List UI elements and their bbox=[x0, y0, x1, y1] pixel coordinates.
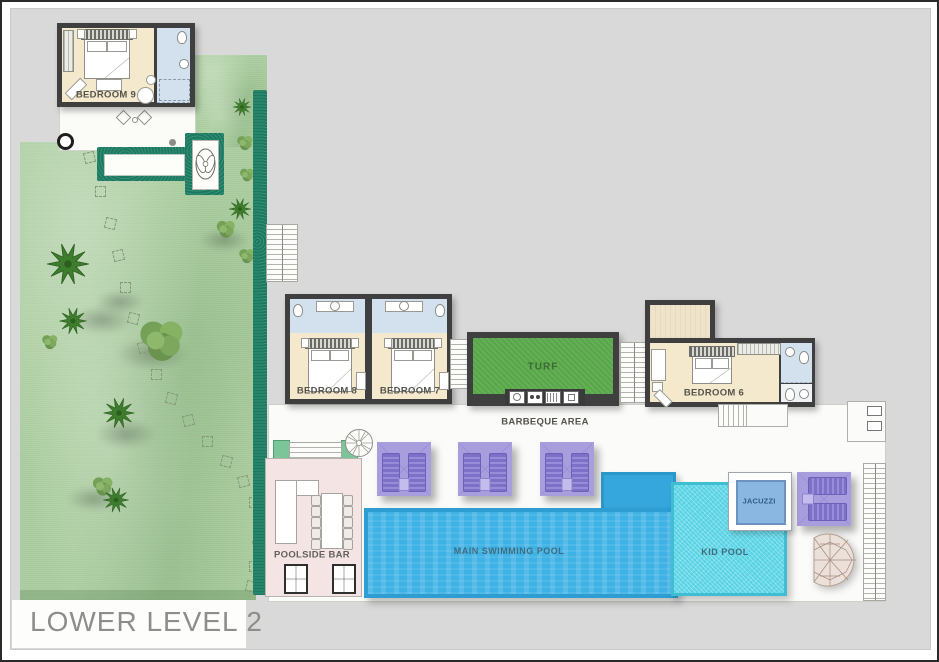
wardrobe bbox=[737, 343, 781, 355]
lounger-table bbox=[480, 478, 491, 491]
bar-table bbox=[321, 493, 343, 549]
lounger-set bbox=[540, 442, 594, 496]
bench bbox=[439, 372, 449, 390]
stairs-garden bbox=[266, 224, 298, 282]
bar-fridge bbox=[332, 564, 356, 594]
planter-box bbox=[273, 440, 290, 460]
pillow bbox=[107, 41, 127, 52]
ac-unit bbox=[867, 421, 882, 431]
bar-counter bbox=[275, 480, 297, 544]
stairs-bedroom6-deck bbox=[718, 404, 747, 427]
bush bbox=[235, 132, 255, 152]
poolside-bar bbox=[265, 458, 362, 597]
kid-pool-label: KID POOL bbox=[701, 547, 749, 557]
main-pool-label: MAIN SWIMMING POOL bbox=[454, 546, 565, 556]
ac-unit bbox=[867, 406, 882, 416]
bbq-burners bbox=[527, 391, 543, 404]
toilet-icon bbox=[293, 304, 303, 317]
bedroom-6-terrace-floor bbox=[650, 305, 710, 341]
headboard bbox=[81, 29, 133, 40]
terrace-diamond-decor bbox=[137, 110, 153, 126]
bed bbox=[84, 29, 130, 79]
bedroom-8-label: BEDROOM 8 bbox=[297, 386, 357, 397]
sun-lounger bbox=[808, 503, 847, 521]
sink-icon bbox=[785, 347, 795, 357]
bar-fridge bbox=[284, 564, 308, 594]
shower bbox=[159, 79, 190, 101]
palm-tree bbox=[102, 396, 136, 430]
sun-lounger bbox=[571, 453, 589, 492]
pillow bbox=[87, 41, 107, 52]
stair-landing bbox=[746, 404, 788, 427]
palm-tree bbox=[102, 486, 130, 514]
jacuzzi-label: JACUZZI bbox=[742, 497, 775, 506]
lounger-set bbox=[797, 472, 851, 526]
sun-lounger bbox=[463, 453, 481, 492]
stepping-stone bbox=[202, 436, 213, 447]
terrace-diamond-decor bbox=[116, 110, 132, 126]
pillow bbox=[413, 350, 432, 361]
fountain-icon bbox=[194, 146, 217, 182]
turf-label: TURF bbox=[528, 362, 559, 373]
sun-lounger bbox=[808, 477, 847, 495]
sun-lounger bbox=[408, 453, 426, 492]
sun-lounger bbox=[489, 453, 507, 492]
round-daybed bbox=[800, 530, 860, 590]
terrace-gray-dot bbox=[169, 139, 176, 146]
pillow bbox=[311, 350, 330, 361]
lounger-set bbox=[377, 442, 431, 496]
bar-chair bbox=[311, 506, 321, 517]
stepping-stone bbox=[120, 282, 131, 293]
palm-tree bbox=[232, 97, 252, 117]
nightstand bbox=[77, 29, 85, 39]
bed bbox=[391, 338, 435, 392]
sink-icon bbox=[330, 301, 340, 311]
headboard bbox=[388, 338, 438, 349]
lounger-table bbox=[399, 478, 410, 491]
plan-title: LOWER LEVEL 2 bbox=[30, 606, 263, 638]
bbq-sink bbox=[509, 391, 525, 404]
round-chair bbox=[137, 87, 154, 104]
bedroom-6-label: BEDROOM 6 bbox=[684, 388, 744, 399]
nightstand bbox=[301, 338, 309, 348]
bar-chair bbox=[311, 528, 321, 539]
palm-tree bbox=[58, 306, 88, 336]
toilet-icon bbox=[785, 388, 795, 401]
bar-chair bbox=[311, 495, 321, 506]
lounger-set bbox=[458, 442, 512, 496]
toilet-icon bbox=[435, 304, 445, 317]
sofa bbox=[651, 349, 666, 381]
bedroom-7-bathroom bbox=[372, 299, 447, 334]
pillow bbox=[330, 350, 349, 361]
stairs-turf-bedroom6 bbox=[620, 342, 647, 403]
bar-chair bbox=[311, 539, 321, 550]
garden-edge-shadow bbox=[20, 590, 256, 600]
bench bbox=[356, 372, 366, 390]
bed bbox=[308, 338, 352, 392]
poolside-bar-label: POOLSIDE BAR bbox=[274, 550, 350, 561]
nightstand bbox=[351, 338, 359, 348]
sun-lounger bbox=[382, 453, 400, 492]
bedroom-9-label: BEDROOM 9 bbox=[76, 90, 136, 101]
pillow bbox=[394, 350, 413, 361]
powder-room bbox=[781, 384, 812, 402]
sink-icon bbox=[799, 389, 809, 399]
nightstand bbox=[384, 338, 392, 348]
floor-plan: LOWER LEVEL 2 bbox=[0, 0, 939, 662]
bar-chair bbox=[343, 495, 353, 506]
stepping-stone bbox=[95, 186, 106, 197]
sun-lounger bbox=[545, 453, 563, 492]
fountain-pavilion bbox=[192, 140, 219, 190]
water-channel bbox=[104, 154, 185, 176]
bedroom-7-label: BEDROOM 7 bbox=[380, 386, 440, 397]
bedroom-8-bathroom bbox=[290, 299, 365, 334]
headboard bbox=[689, 346, 735, 357]
bar-chair bbox=[343, 517, 353, 528]
bar-chair bbox=[343, 528, 353, 539]
terrace bbox=[59, 105, 196, 151]
nightstand bbox=[434, 338, 442, 348]
terrace-dot-decor bbox=[132, 117, 138, 123]
palm-tree bbox=[45, 241, 91, 287]
bar-chair bbox=[343, 506, 353, 517]
toilet-icon bbox=[177, 31, 187, 44]
bbq-cabinet bbox=[563, 391, 579, 404]
stepping-stone bbox=[151, 369, 162, 380]
planter-ring bbox=[57, 133, 74, 150]
headboard bbox=[305, 338, 355, 349]
side-table bbox=[146, 75, 156, 85]
wardrobe bbox=[63, 30, 74, 72]
lounger-table bbox=[802, 494, 814, 505]
stairs-right bbox=[863, 463, 886, 601]
lounger-table bbox=[562, 478, 573, 491]
blanket-fold bbox=[105, 58, 129, 78]
barbeque-counter bbox=[505, 389, 585, 405]
spiral-staircase bbox=[344, 428, 374, 458]
bbq-grill bbox=[545, 391, 561, 404]
bush bbox=[134, 310, 190, 366]
service-alcove bbox=[847, 401, 886, 442]
bush bbox=[214, 216, 238, 240]
blanket-fold bbox=[710, 368, 731, 383]
bed bbox=[692, 346, 732, 384]
toilet-icon bbox=[799, 351, 809, 364]
sink-icon bbox=[399, 301, 409, 311]
nightstand bbox=[129, 29, 137, 39]
bar-chair bbox=[311, 517, 321, 528]
bush bbox=[40, 331, 60, 351]
sink-icon bbox=[179, 59, 189, 69]
barbeque-area-label: BARBEQUE AREA bbox=[501, 417, 588, 428]
bedroom-6-bathroom bbox=[781, 343, 812, 383]
bar-chair bbox=[343, 539, 353, 550]
garden-lawn bbox=[20, 142, 256, 600]
